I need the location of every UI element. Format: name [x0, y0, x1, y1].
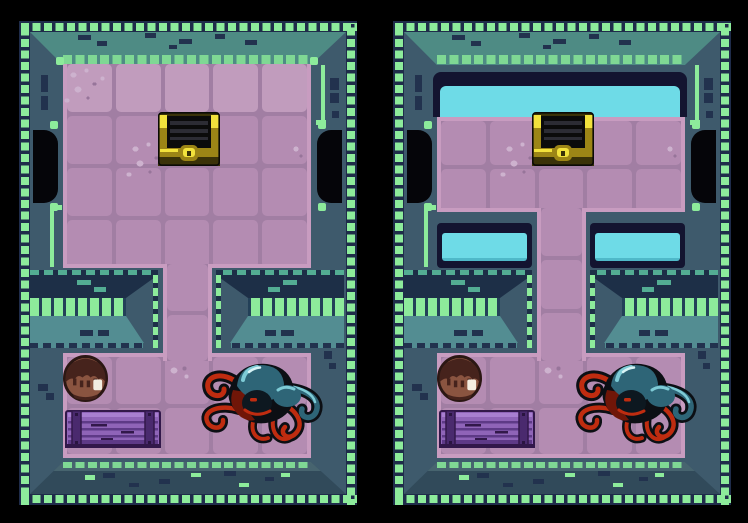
ledge-roof	[404, 275, 532, 298]
right-ledge	[216, 270, 344, 348]
door-bracket	[692, 121, 700, 129]
panel-room-dry	[19, 21, 357, 505]
ledge-roof	[30, 275, 158, 298]
player-character[interactable]	[63, 355, 108, 402]
east-door[interactable]	[691, 130, 716, 203]
floor-tile	[67, 116, 112, 164]
panel-room-flooded	[393, 21, 731, 505]
ledge-green-strip	[30, 298, 126, 316]
player-character[interactable]	[437, 355, 482, 402]
floor-tile	[441, 121, 486, 165]
octopus-monster[interactable]	[199, 356, 323, 446]
floor-tile	[441, 169, 486, 213]
floor-edge	[212, 264, 311, 268]
ledge-side-line	[527, 270, 532, 348]
floor-tile	[587, 169, 632, 213]
floor-tile	[587, 121, 632, 165]
floor-tile	[213, 220, 258, 268]
floor-tile	[116, 220, 161, 268]
ledge-face	[216, 316, 344, 343]
floor-tile	[213, 64, 258, 112]
ledge-side-line	[216, 270, 221, 348]
floor-tile	[116, 64, 161, 112]
floor-north-edge-tiles	[437, 55, 685, 64]
floor-tile	[262, 168, 307, 216]
floor-south-edge-tiles	[437, 462, 685, 468]
ledge-bottom-line	[605, 343, 718, 348]
west-door[interactable]	[407, 130, 432, 203]
floor-tile	[541, 313, 582, 361]
water-left-alcove	[442, 233, 527, 261]
floor-tile	[262, 220, 307, 268]
game-screenshot	[0, 0, 748, 523]
floor-edge	[586, 208, 685, 212]
floor-tile	[116, 357, 161, 404]
ledge-green-strip	[622, 298, 718, 316]
west-door[interactable]	[33, 130, 58, 203]
corner-bracket	[310, 57, 318, 65]
left-ledge	[404, 270, 532, 348]
door-bracket	[50, 203, 58, 211]
ledge-face	[590, 316, 718, 343]
east-door[interactable]	[317, 130, 342, 203]
door-bracket	[318, 203, 326, 211]
octopus-monster[interactable]	[573, 356, 697, 446]
ledge-top-line	[30, 270, 158, 275]
floor-north-edge-tiles	[63, 55, 311, 64]
floor-tile	[165, 220, 210, 268]
floor-tile	[213, 168, 258, 216]
floor-tile	[262, 64, 307, 112]
floor-pebbles	[291, 144, 305, 160]
door-bracket	[318, 121, 326, 129]
floor-pebbles	[168, 364, 194, 382]
floor-tile	[541, 260, 582, 308]
floor-pebbles	[542, 364, 568, 382]
floor-tile	[167, 264, 208, 311]
purple-crate[interactable]	[65, 410, 161, 448]
ledge-face	[30, 316, 158, 343]
ledge-bottom-line	[404, 343, 517, 348]
ledge-roof	[590, 275, 718, 298]
floor-tile	[167, 315, 208, 362]
corridor-floor	[537, 208, 586, 361]
door-bracket	[692, 203, 700, 211]
floor-tile	[490, 357, 535, 404]
ledge-bottom-line	[231, 343, 344, 348]
ledge-top-line	[404, 270, 532, 275]
right-ledge	[590, 270, 718, 348]
treasure-chest[interactable]	[532, 112, 594, 166]
floor-tile	[636, 169, 681, 213]
corner-bracket	[56, 57, 64, 65]
left-ledge	[30, 270, 158, 348]
floor-pebbles	[62, 68, 110, 110]
corridor-floor	[163, 264, 212, 361]
ledge-bottom-line	[30, 343, 143, 348]
door-bracket	[50, 121, 58, 129]
floor-south-edge-tiles	[63, 462, 311, 468]
door-bracket	[424, 203, 432, 211]
floor-tile	[67, 168, 112, 216]
floor-edge	[437, 208, 537, 212]
ledge-green-strip	[404, 298, 500, 316]
floor-tile	[165, 64, 210, 112]
door-bracket	[424, 121, 432, 129]
floor-tile	[541, 208, 582, 256]
ledge-top-line	[590, 270, 718, 275]
floor-tile	[67, 220, 112, 268]
floor-edge	[63, 264, 163, 268]
ledge-face	[404, 316, 532, 343]
ledge-green-strip	[248, 298, 344, 316]
ledge-top-line	[216, 270, 344, 275]
floor-pebbles	[665, 144, 679, 160]
ledge-side-line	[153, 270, 158, 348]
ledge-side-line	[590, 270, 595, 348]
purple-crate[interactable]	[439, 410, 535, 448]
floor-tile	[213, 116, 258, 164]
ledge-roof	[216, 275, 344, 298]
water-right-alcove	[595, 233, 680, 261]
treasure-chest[interactable]	[158, 112, 220, 166]
